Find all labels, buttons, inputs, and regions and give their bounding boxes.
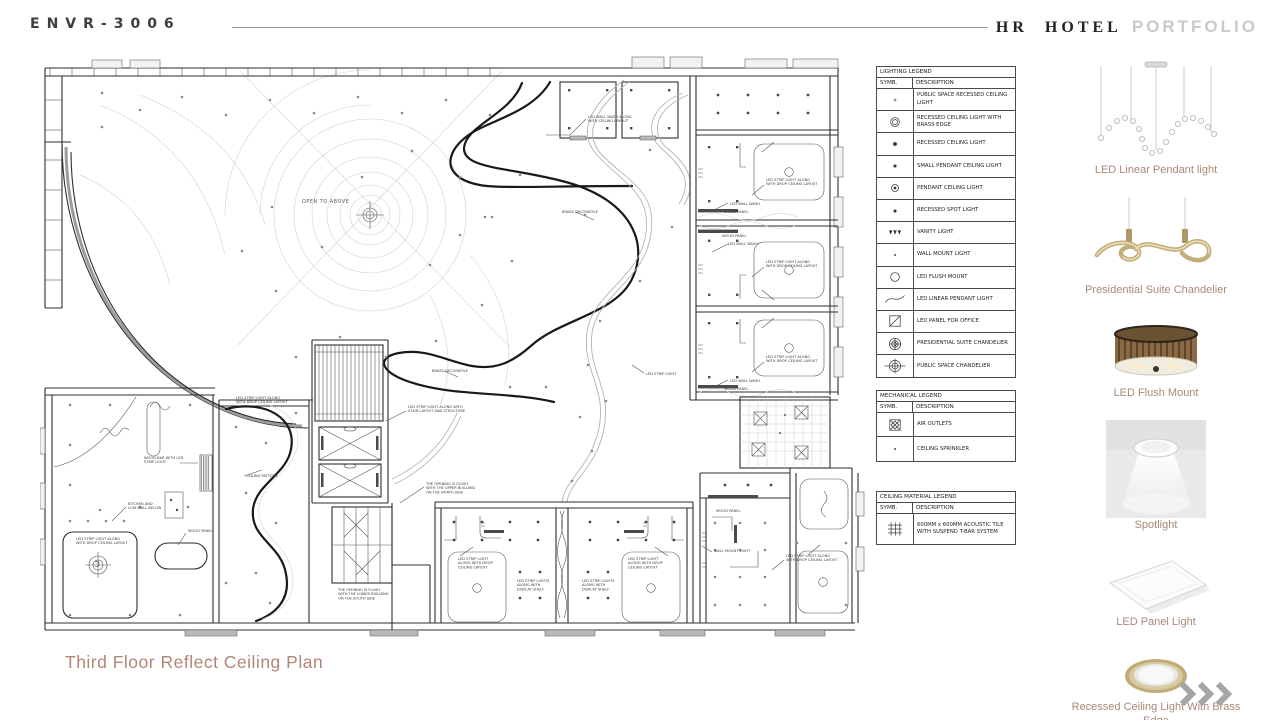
product-led-panel: LED Panel Light (1065, 553, 1247, 630)
svg-text:LED STRIP LIGHT ALONGWITH DROP: LED STRIP LIGHT ALONGWITH DROP CEILING L… (236, 396, 288, 404)
svg-text:LED STRIP LIGHT ALONGWITH DROP: LED STRIP LIGHT ALONGWITH DROP CEILING L… (766, 260, 818, 268)
brand-subtitle: PORTFOLIO (1132, 17, 1258, 37)
legend-row: 600MM x 600MM ACOUSTIC TILE WITH SUSPEND… (877, 514, 1015, 544)
legend-description: SMALL PENDANT CEILING LIGHT (914, 156, 1015, 177)
legend-description: LED FLUSH MOUNT (914, 267, 1015, 288)
legend-row: PUBLIC SPACE RECESSED CEILING LIGHT (877, 89, 1015, 111)
lower-stair (332, 503, 430, 630)
svg-text:LED STRIP LIGHTSALONG WITHDISP: LED STRIP LIGHTSALONG WITHDISPLAY SHELF (517, 579, 550, 591)
presidential-chandelier-symbol (85, 552, 111, 578)
legend-row: PUBLIC SPACE CHANDELIER (877, 355, 1015, 377)
square-dot-icon (877, 156, 914, 177)
s-curve-icon (877, 289, 914, 310)
svg-text:WOOD PANEL: WOOD PANEL (722, 234, 746, 238)
fixture-gallery: LED Linear Pendant light Presidential Su… (1065, 58, 1247, 720)
brass-decorative-curve (384, 83, 638, 402)
legend-panel: LIGHTING LEGENDSYMB.DESCRIPTIONPUBLIC SP… (876, 66, 1016, 545)
svg-text:LED STRIP LIGHT: LED STRIP LIGHT (646, 372, 677, 376)
led-wall-wash-wall (450, 82, 632, 187)
chandelier-public-icon (877, 355, 914, 377)
legend-description: AIR OUTLETS (914, 413, 1015, 436)
legend-row: RECESSED SPOT LIGHT (877, 200, 1015, 222)
svg-text:LED STRIP LIGHTALONG WITH DROP: LED STRIP LIGHTALONG WITH DROPCEILING LA… (628, 557, 664, 569)
svg-text:LED STRIP LIGHT ALONGWITH DROP: LED STRIP LIGHT ALONGWITH DROP CEILING L… (76, 537, 128, 545)
svg-text:CEILING PATTERN: CEILING PATTERN (246, 474, 278, 478)
svg-text:WOOD PANEL: WOOD PANEL (724, 387, 748, 391)
ceiling-material-legend: CEILING MATERIAL LEGENDSYMB.DESCRIPTION6… (876, 491, 1016, 545)
svg-text:LED STRIP LIGHT ALONG WITHSTAI: LED STRIP LIGHT ALONG WITHSTAIR LAYOUT A… (408, 405, 466, 413)
panel-icon (877, 311, 914, 332)
brand-title: HR HOTEL (996, 19, 1122, 37)
legend-row: VANITY LIGHT (877, 222, 1015, 244)
svg-text:THE OPENING IS FLUSHWITH THE L: THE OPENING IS FLUSHWITH THE LOWER BUILD… (337, 588, 389, 600)
legend-row: CEILING SPRINKLER (877, 437, 1015, 461)
circle-icon (877, 267, 914, 288)
svg-text:LED WALL WASH ALONGWITH CEILIN: LED WALL WASH ALONGWITH CEILING LAYOUT (588, 115, 632, 123)
legend-title: CEILING MATERIAL LEGEND (877, 492, 1015, 503)
led-flush-mount-image (1101, 320, 1211, 386)
legend-description: RECESSED CEILING LIGHT WITH BRASS EDGE (914, 111, 1015, 132)
header-divider (232, 27, 988, 28)
svg-text:WOOD PANEL: WOOD PANEL (724, 210, 748, 214)
presidential-chandelier-image (1081, 195, 1231, 283)
spotlight-image (1106, 420, 1206, 518)
brand-header: HR HOTEL PORTFOLIO (996, 17, 1258, 37)
svg-text:LED STRIP LIGHT ALONGWITH DROP: LED STRIP LIGHT ALONGWITH DROP CEILING L… (766, 355, 818, 363)
svg-text:LED STRIP LIGHT ALONGWITH DROP: LED STRIP LIGHT ALONGWITH DROP CEILING L… (766, 178, 818, 186)
svg-text:LED STRIP LIGHTALONG WITH DROP: LED STRIP LIGHTALONG WITH DROPCEILING LA… (458, 557, 494, 569)
tiny-dot-icon (877, 244, 914, 265)
legend-row: LED LINEAR PENDANT LIGHT (877, 289, 1015, 311)
legend-description: PUBLIC SPACE RECESSED CEILING LIGHT (914, 89, 1015, 110)
product-caption: LED Panel Light (1065, 616, 1247, 630)
product-caption: LED Linear Pendant light (1065, 164, 1247, 178)
led-strip-curves (392, 80, 690, 502)
legend-column-headers: SYMB.DESCRIPTION (877, 503, 1015, 514)
legend-description: PUBLIC SPACE CHANDELIER (914, 355, 1015, 377)
legend-column-headers: SYMB.DESCRIPTION (877, 78, 1015, 89)
legend-description: LED PANEL FOR OFFICE (914, 311, 1015, 332)
svg-text:LED STRIP LIGHTSALONG WITHDISP: LED STRIP LIGHTSALONG WITHDISPLAY SHELF (582, 579, 615, 591)
door-tabs-bottom (185, 630, 825, 636)
chandelier-suite-icon (877, 333, 914, 354)
mechanical-legend: MECHANICAL LEGENDSYMB.DESCRIPTIONAIR OUT… (876, 390, 1016, 462)
legend-description: PENDANT CEILING LIGHT (914, 178, 1015, 199)
circle-dot-icon (877, 178, 914, 199)
legend-row: PRESIDENTIAL SUITE CHANDELIER (877, 333, 1015, 355)
legend-row: SMALL PENDANT CEILING LIGHT (877, 156, 1015, 178)
window-tabs-left (40, 428, 45, 565)
small-dot-icon (877, 200, 914, 221)
legend-column-headers: SYMB.DESCRIPTION (877, 402, 1015, 413)
tile-grid-icon (877, 514, 914, 544)
course-logo: ENVR-3006 (30, 16, 181, 32)
svg-text:WOOD PANEL: WOOD PANEL (716, 509, 740, 513)
recessed-light-dots (69, 92, 848, 617)
product-caption: LED Flush Mount (1065, 387, 1247, 401)
legend-row: RECESSED CEILING LIGHT WITH BRASS EDGE (877, 111, 1015, 133)
legend-title: LIGHTING LEGEND (877, 67, 1015, 78)
product-led-flush-mount: LED Flush Mount (1065, 320, 1247, 401)
svg-text:LED STRIP LIGHT ALONGWITH DROP: LED STRIP LIGHT ALONGWITH DROP CEILING L… (786, 554, 838, 562)
product-caption: Spotlight (1065, 519, 1247, 533)
legend-description: LED LINEAR PENDANT LIGHT (914, 289, 1015, 310)
legend-description: RECESSED SPOT LIGHT (914, 200, 1015, 221)
recessed-dot-light-icon (877, 89, 914, 110)
slide-title: Third Floor Reflect Ceiling Plan (65, 652, 323, 673)
legend-row: WALL MOUNT LIGHT (877, 244, 1015, 266)
svg-text:BRASS DECORATIVE: BRASS DECORATIVE (432, 369, 469, 373)
public-space-chandelier-symbol (356, 201, 384, 229)
next-slide-arrows[interactable] (1178, 681, 1240, 707)
product-spotlight: Spotlight (1065, 420, 1247, 533)
legend-description: WALL MOUNT LIGHT (914, 244, 1015, 265)
svg-text:WALL MOUNT LIGHT: WALL MOUNT LIGHT (714, 549, 751, 553)
legend-row: LED FLUSH MOUNT (877, 267, 1015, 289)
legend-description: VANITY LIGHT (914, 222, 1015, 243)
led-panel-image (1094, 553, 1219, 615)
stair-core (315, 345, 383, 421)
svg-text:LED WALL WASH: LED WALL WASH (728, 242, 758, 246)
legend-description: 600MM x 600MM ACOUSTIC TILE WITH SUSPEND… (914, 514, 1015, 544)
tiny-dot-icon (877, 437, 914, 461)
svg-text:LED WALL WASH: LED WALL WASH (730, 379, 760, 383)
ring-icon (877, 111, 914, 132)
svg-text:LED WALL WASH: LED WALL WASH (730, 202, 760, 206)
vanity-icon (877, 222, 914, 243)
led-linear-pendant-image (1081, 58, 1231, 163)
ceiling-pattern-room (219, 400, 313, 623)
product-caption: Presidential Suite Chandelier (1065, 284, 1247, 298)
svg-text:BRASS DECORATIVE: BRASS DECORATIVE (562, 210, 599, 214)
legend-description: RECESSED CEILING LIGHT (914, 133, 1015, 154)
legend-description: CEILING SPRINKLER (914, 437, 1015, 461)
dot-icon (877, 133, 914, 154)
svg-text:WOOD BAR WITH LEDSTRIP LIGHT: WOOD BAR WITH LEDSTRIP LIGHT (144, 456, 184, 464)
guestroom-walls (690, 76, 838, 400)
plan-annotations: OPEN TO ABOVELED WALL WASH ALONGWITH CEI… (76, 115, 838, 600)
product-presidential-chandelier: Presidential Suite Chandelier (1065, 195, 1247, 298)
product-led-linear-pendant: LED Linear Pendant light (1065, 58, 1247, 178)
floor-plan-drawing: OPEN TO ABOVELED WALL WASH ALONGWITH CEI… (40, 55, 870, 655)
svg-text:THE OPENING IS FLUSHWITH THE U: THE OPENING IS FLUSHWITH THE UPPER BUILD… (425, 482, 476, 494)
legend-row: PENDANT CEILING LIGHT (877, 178, 1015, 200)
legend-description: PRESIDENTIAL SUITE CHANDELIER (914, 333, 1015, 354)
air-outlet-icon (877, 413, 914, 436)
svg-text:WOOD PANEL: WOOD PANEL (188, 529, 212, 533)
legend-title: MECHANICAL LEGEND (877, 391, 1015, 402)
lighting-legend: LIGHTING LEGENDSYMB.DESCRIPTIONPUBLIC SP… (876, 66, 1016, 378)
svg-text:OPEN TO ABOVE: OPEN TO ABOVE (302, 199, 349, 205)
curved-atrium-wall (45, 142, 308, 428)
corridor-room-lights (717, 94, 810, 115)
legend-row: RECESSED CEILING LIGHT (877, 133, 1015, 155)
legend-row: LED PANEL FOR OFFICE (877, 311, 1015, 333)
legend-row: AIR OUTLETS (877, 413, 1015, 437)
portfolio-slide: ENVR-3006 HR HOTEL PORTFOLIO (0, 0, 1280, 720)
svg-text:KITCHEN ANDLOW WALL BELOW: KITCHEN ANDLOW WALL BELOW (128, 502, 162, 510)
